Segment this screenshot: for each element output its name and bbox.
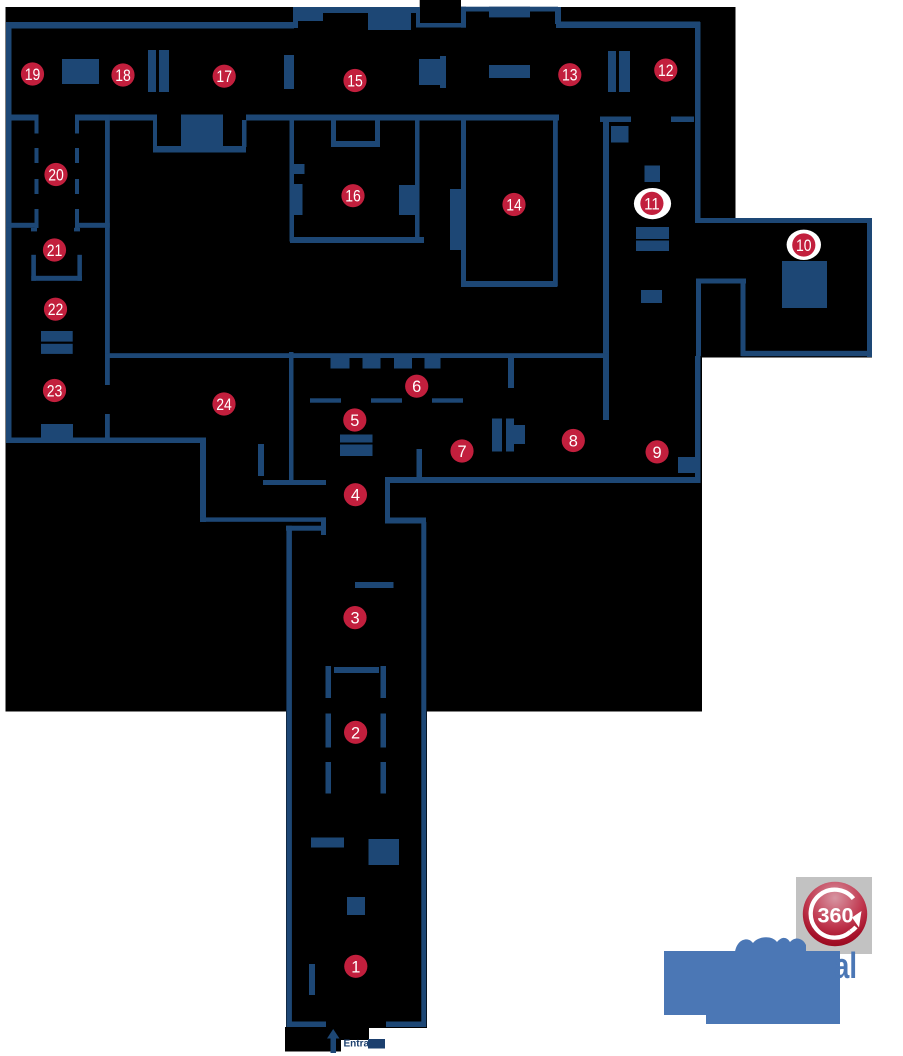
svg-text:20: 20 <box>48 167 64 185</box>
svg-text:16: 16 <box>345 188 361 206</box>
svg-text:17: 17 <box>216 68 232 86</box>
svg-text:1: 1 <box>351 958 360 976</box>
svg-text:13: 13 <box>562 67 578 85</box>
svg-text:21: 21 <box>47 242 63 260</box>
svg-text:15: 15 <box>347 73 363 91</box>
svg-text:5: 5 <box>350 412 359 430</box>
svg-text:14: 14 <box>506 197 522 215</box>
svg-text:22: 22 <box>48 301 64 319</box>
svg-text:11: 11 <box>644 195 660 213</box>
svg-text:2: 2 <box>351 724 360 742</box>
svg-text:al: al <box>834 945 857 986</box>
svg-text:7: 7 <box>457 443 466 461</box>
svg-text:360: 360 <box>818 904 854 928</box>
svg-text:23: 23 <box>47 383 63 401</box>
svg-text:6: 6 <box>412 378 421 396</box>
svg-text:12: 12 <box>658 62 674 80</box>
svg-text:4: 4 <box>351 487 360 505</box>
svg-text:24: 24 <box>216 396 232 414</box>
svg-text:3: 3 <box>350 610 359 628</box>
svg-text:8: 8 <box>569 433 578 451</box>
svg-text:9: 9 <box>653 444 662 462</box>
svg-text:18: 18 <box>115 67 131 85</box>
svg-text:19: 19 <box>25 66 41 84</box>
svg-text:10: 10 <box>796 237 812 255</box>
